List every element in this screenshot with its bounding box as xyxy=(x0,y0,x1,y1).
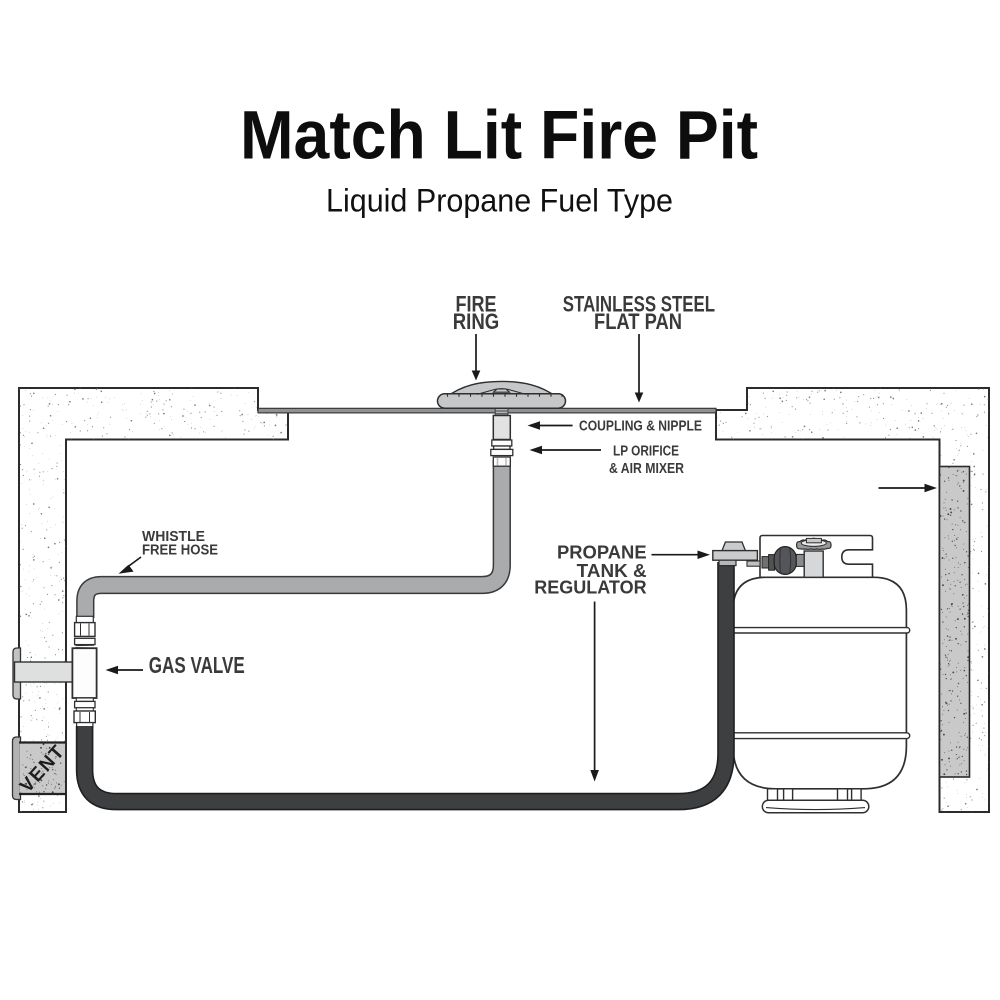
svg-text:COUPLING & NIPPLE: COUPLING & NIPPLE xyxy=(579,418,702,434)
svg-text:Match Lit Fire Pit: Match Lit Fire Pit xyxy=(240,97,758,174)
svg-text:LP ORIFICE: LP ORIFICE xyxy=(613,444,679,460)
svg-text:FLAT PAN: FLAT PAN xyxy=(594,309,682,334)
svg-text:& AIR MIXER: & AIR MIXER xyxy=(609,461,685,477)
svg-text:RING: RING xyxy=(453,309,500,334)
svg-text:GAS VALVE: GAS VALVE xyxy=(149,652,245,678)
svg-text:REGULATOR: REGULATOR xyxy=(534,577,646,598)
svg-text:Liquid Propane Fuel Type: Liquid Propane Fuel Type xyxy=(326,183,673,219)
svg-text:FREE HOSE: FREE HOSE xyxy=(142,543,218,559)
